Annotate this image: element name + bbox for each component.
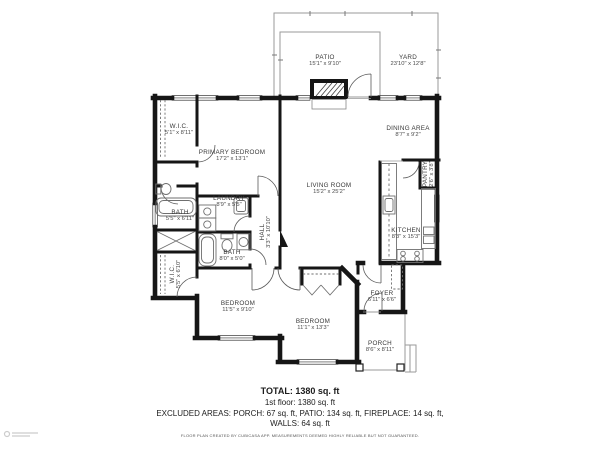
kitchen-counter-right (422, 189, 436, 249)
bathtub-2 (199, 234, 216, 266)
porch-steps (405, 345, 416, 372)
porch-outline (357, 312, 405, 370)
wic2-closet-rail (161, 255, 166, 294)
disclaimer-text: FLOOR PLAN CREATED BY CUBICASA APP. MEAS… (0, 433, 600, 438)
yard-fence-ticks (272, 11, 441, 78)
patio-door-arc (348, 74, 371, 97)
linen-closet-x (157, 232, 195, 251)
first-floor-text: 1st floor: 1380 sq. ft (0, 398, 600, 407)
bath2-sink (237, 234, 250, 250)
wic1-closet-rail (161, 100, 166, 158)
toilet-2 (221, 234, 233, 252)
stove (397, 250, 423, 263)
yard-outline (274, 13, 438, 97)
bedroom2-closet (303, 274, 339, 295)
floor-plan-page: PATIO15'1" x 9'10" YARD23'10" x 12'8" W.… (0, 0, 600, 450)
porch-post-left (356, 364, 363, 371)
laundry-sink (234, 198, 248, 214)
kitchen-sink (383, 196, 395, 214)
bathtub-1 (156, 198, 196, 216)
total-area-text: TOTAL: 1380 sq. ft (0, 386, 600, 396)
walls-area-text: WALLS: 64 sq. ft (0, 419, 600, 428)
washer-dryer (199, 205, 216, 231)
floor-plan-svg (0, 0, 600, 450)
excluded-areas-text: EXCLUDED AREAS: PORCH: 67 sq. ft, PATIO:… (0, 409, 600, 418)
porch-post-right (397, 364, 404, 371)
fireplace (310, 79, 348, 109)
fireplace-hearth (312, 100, 346, 110)
